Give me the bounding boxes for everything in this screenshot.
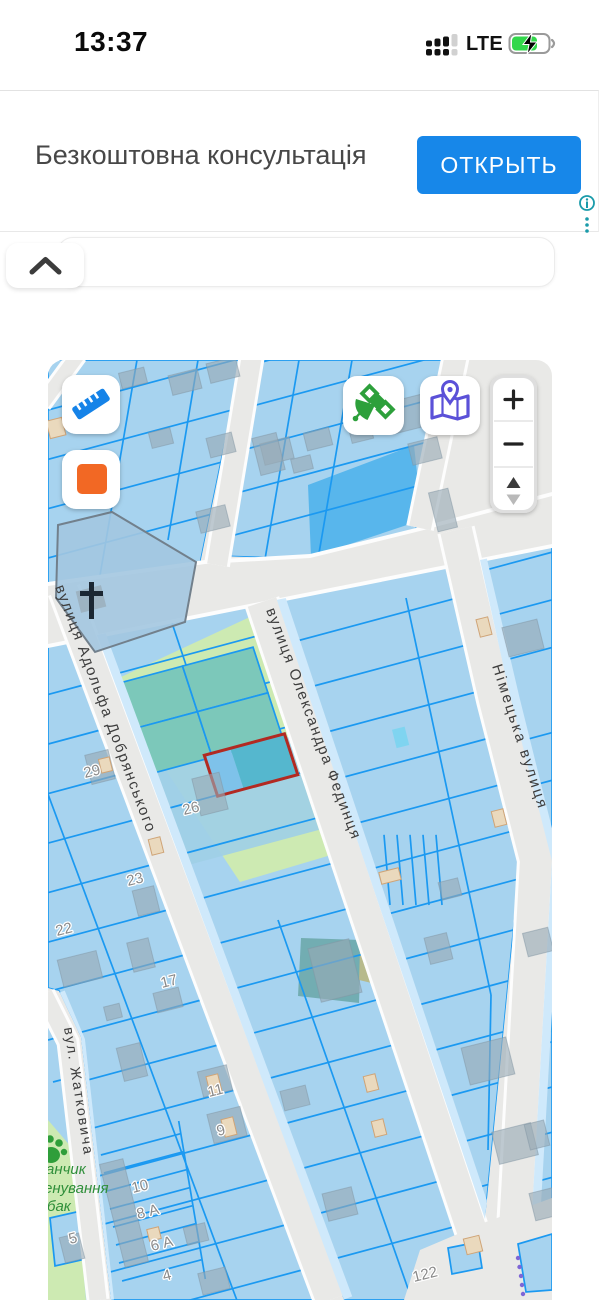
svg-text:бак: бак bbox=[48, 1198, 72, 1215]
svg-text:енування: енування bbox=[48, 1180, 108, 1197]
svg-text:анчик: анчик bbox=[48, 1161, 87, 1178]
